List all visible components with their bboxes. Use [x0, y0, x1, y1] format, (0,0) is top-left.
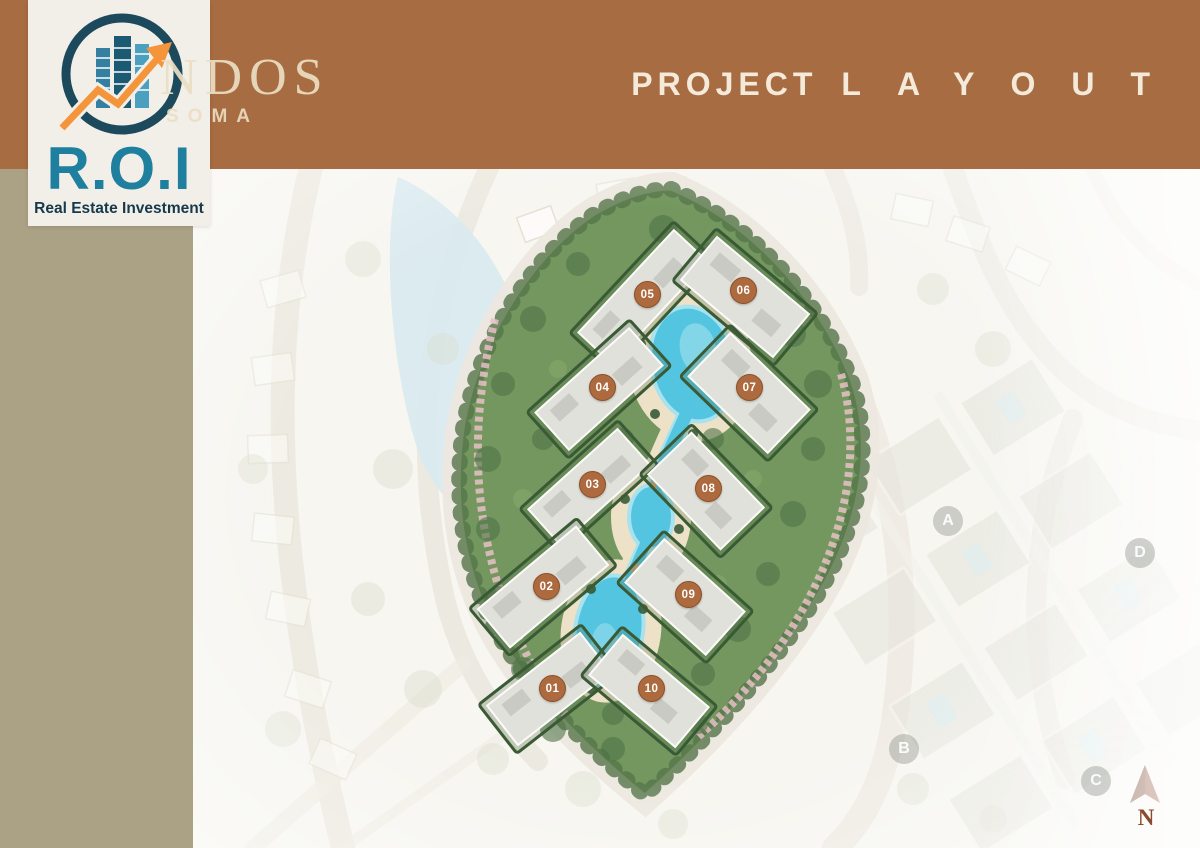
district-label-b: B: [889, 734, 919, 764]
building-marker-07[interactable]: 07: [736, 374, 763, 401]
building-marker-02[interactable]: 02: [533, 573, 560, 600]
title-project: PROJECT: [631, 66, 817, 103]
building-marker-05[interactable]: 05: [634, 281, 661, 308]
compass-north-label: N: [1129, 805, 1163, 831]
district-label-c: C: [1081, 766, 1111, 796]
district-label-d: D: [1125, 538, 1155, 568]
building-marker-01[interactable]: 01: [539, 675, 566, 702]
left-sidebar-panel: [0, 169, 193, 848]
building-marker-04[interactable]: 04: [589, 374, 616, 401]
building-marker-10[interactable]: 10: [638, 675, 665, 702]
page-title: PROJECT LAYOUT: [631, 66, 1186, 103]
roi-logo-icon: [32, 6, 206, 138]
building-marker-03[interactable]: 03: [579, 471, 606, 498]
building-marker-09[interactable]: 09: [675, 581, 702, 608]
roi-acronym: R.O.I: [28, 134, 210, 203]
title-layout: LAYOUT: [841, 66, 1186, 103]
building-marker-08[interactable]: 08: [695, 475, 722, 502]
district-label-a: A: [933, 506, 963, 536]
masterplan-map: ;: [193, 169, 1200, 848]
page: PROJECT LAYOUT: [0, 0, 1200, 848]
masterplan-art: ;: [193, 169, 1200, 848]
roi-logo-card: R.O.I Real Estate Investment: [28, 0, 210, 226]
roi-tagline: Real Estate Investment: [28, 200, 210, 218]
building-marker-06[interactable]: 06: [730, 277, 757, 304]
